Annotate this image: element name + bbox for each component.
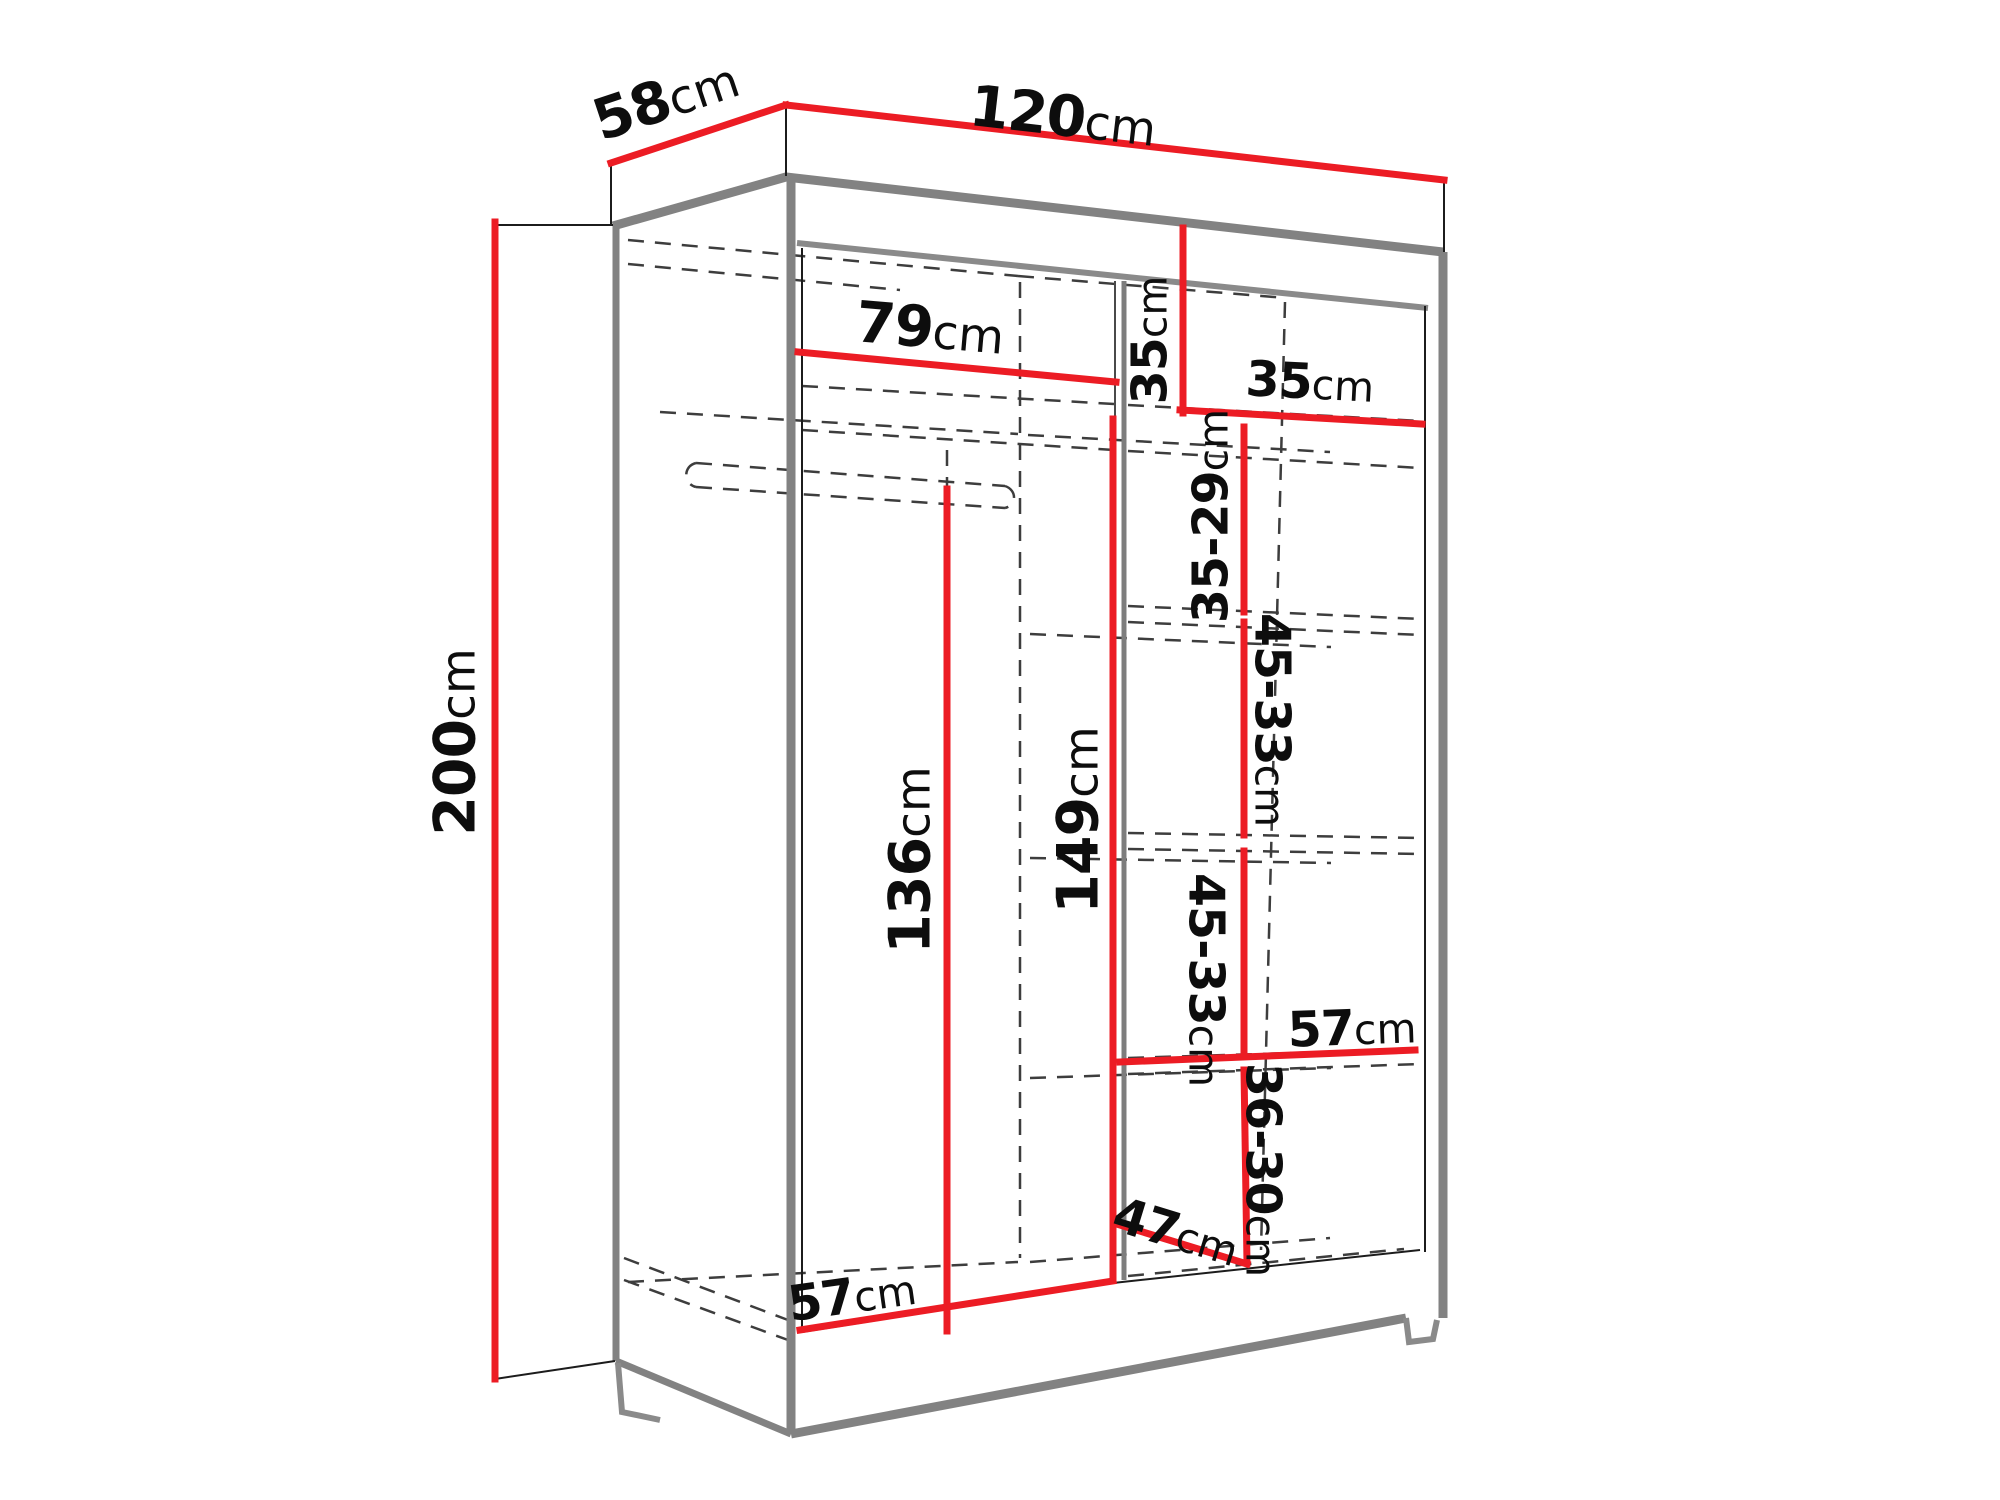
dim-label-drawer-gap: 36-30cm: [1239, 1063, 1288, 1277]
dim-label-top-right-height: 35cm: [1126, 276, 1175, 405]
dim-label-shelf-gap-upper: 35-29cm: [1187, 409, 1236, 623]
dim-label-height: 200cm: [428, 648, 485, 836]
top-panel-edge: [613, 177, 1443, 252]
dim-label-top-shelf-width: 79cm: [853, 294, 1006, 364]
dim-label-shelf-width-right: 57cm: [1287, 1001, 1417, 1054]
left-panel-bottom-edge: [616, 1361, 791, 1434]
dim-label-shelf-gap-lower: 45-33cm: [1182, 873, 1231, 1087]
wardrobe-diagram: 58cm 120cm 200cm 79cm 35cm 35cm 35-29cm …: [0, 0, 2000, 1500]
wardrobe-line-drawing: [0, 0, 2000, 1500]
front-bottom-edge: [791, 1318, 1406, 1434]
hanging-rail: [686, 463, 1014, 508]
dim-label-partition-height: 149cm: [1051, 726, 1108, 914]
dim-label-top-right-width: 35cm: [1244, 354, 1375, 410]
dim-label-shelf-gap-mid: 45-33cm: [1248, 613, 1297, 827]
dim-label-hanging-height: 136cm: [883, 766, 940, 954]
right-foot: [1406, 1318, 1437, 1342]
